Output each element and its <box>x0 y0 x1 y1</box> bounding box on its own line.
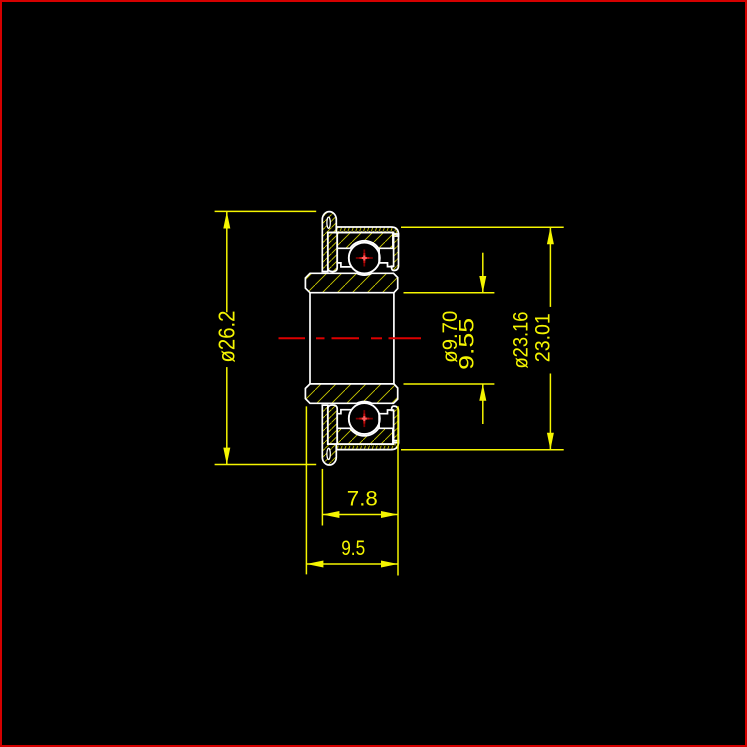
svg-text:ø23.16: ø23.16 <box>510 312 533 369</box>
svg-text:23.01: 23.01 <box>532 313 555 362</box>
svg-text:ø26.2: ø26.2 <box>213 311 239 363</box>
svg-text:7.8: 7.8 <box>347 487 378 510</box>
svg-text:9.55: 9.55 <box>456 318 479 370</box>
svg-text:9.5: 9.5 <box>341 537 365 560</box>
